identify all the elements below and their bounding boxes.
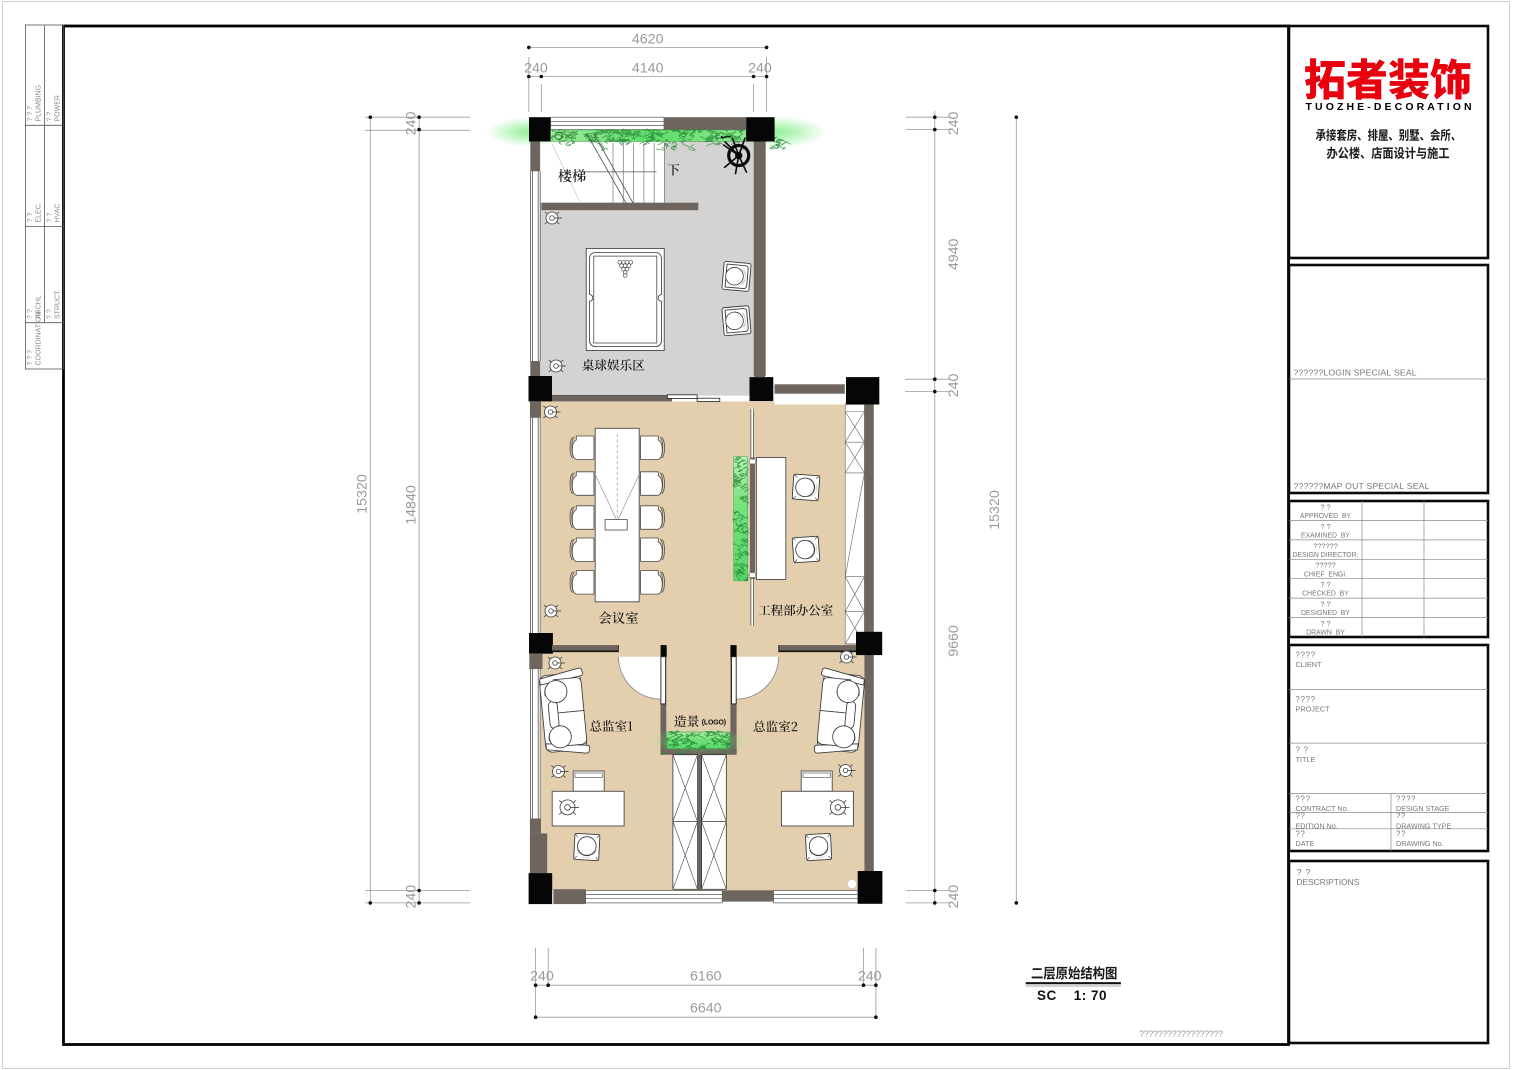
svg-text:??????????????????: ??????????????????: [1139, 1029, 1223, 1039]
svg-text:6160: 6160: [690, 969, 722, 985]
svg-text:EXAMINED BY: EXAMINED BY: [1301, 532, 1350, 539]
svg-text:9660: 9660: [946, 625, 962, 657]
svg-text:? ?: ? ?: [1320, 600, 1330, 609]
svg-text:? ?: ? ?: [1320, 502, 1330, 511]
svg-text:4620: 4620: [632, 32, 664, 48]
svg-text:? ?: ? ?: [1320, 619, 1330, 628]
svg-text:HVAC: HVAC: [55, 204, 62, 223]
svg-text:PROJECT: PROJECT: [1296, 705, 1331, 714]
svg-text:??????MAP OUT SPECIAL SEAL: ??????MAP OUT SPECIAL SEAL: [1294, 481, 1430, 491]
svg-text:POWER: POWER: [55, 95, 62, 121]
svg-text:DESIGN DIRECTOR:: DESIGN DIRECTOR:: [1292, 552, 1358, 559]
svg-text:??: ??: [1296, 812, 1306, 821]
svg-text:? ?: ? ?: [1320, 580, 1330, 589]
svg-text:??: ??: [1396, 830, 1406, 839]
svg-text:240: 240: [946, 885, 962, 909]
svg-text:??: ??: [1396, 812, 1406, 821]
svg-text:4140: 4140: [632, 61, 664, 77]
svg-text:??????LOGIN SPECIAL SEAL: ??????LOGIN SPECIAL SEAL: [1294, 368, 1417, 378]
svg-text:240: 240: [524, 61, 548, 77]
svg-text:? ?: ? ?: [1296, 746, 1309, 755]
svg-text:????: ????: [1296, 651, 1316, 660]
svg-text:ELEC.: ELEC.: [35, 202, 42, 222]
svg-text:DESIGNED BY: DESIGNED BY: [1301, 610, 1350, 617]
svg-text:? ?: ? ?: [27, 213, 34, 223]
svg-text:CHECKED BY: CHECKED BY: [1302, 591, 1349, 598]
svg-text:15320: 15320: [987, 490, 1003, 530]
svg-text:TUOZHE-DECORATION: TUOZHE-DECORATION: [1306, 101, 1475, 113]
svg-text:240: 240: [404, 112, 420, 136]
svg-text:???: ???: [1296, 795, 1311, 804]
svg-text:? ?: ? ?: [46, 309, 53, 319]
svg-text:? ?: ? ?: [1297, 868, 1312, 878]
svg-text:COORDINATION: COORDINATION: [35, 312, 42, 366]
svg-text:? ? ?: ? ? ?: [27, 106, 34, 122]
svg-text:DATE: DATE: [1296, 839, 1315, 848]
svg-text:APPROVED BY: APPROVED BY: [1300, 513, 1352, 520]
svg-text:? ?: ? ?: [1320, 522, 1330, 531]
svg-text:STRUCT.: STRUCT.: [55, 289, 62, 319]
svg-text:????: ????: [1396, 795, 1416, 804]
svg-text:240: 240: [748, 61, 772, 77]
svg-text:SC 1: 70: SC 1: 70: [1037, 988, 1107, 1003]
svg-text:240: 240: [946, 373, 962, 397]
svg-text:CHIEF ENGI.: CHIEF ENGI.: [1304, 571, 1347, 578]
svg-text:15320: 15320: [355, 474, 371, 514]
svg-text:? ?: ? ?: [46, 213, 53, 223]
svg-text:(LOGO): (LOGO): [702, 720, 726, 727]
svg-text:4940: 4940: [946, 239, 962, 271]
svg-text:240: 240: [946, 111, 962, 135]
svg-text:240: 240: [530, 969, 554, 985]
svg-text:PLUMBING: PLUMBING: [35, 85, 42, 122]
svg-text:? ?: ? ?: [46, 112, 53, 122]
svg-text:DESCRIPTIONS: DESCRIPTIONS: [1297, 877, 1360, 887]
svg-text:14840: 14840: [404, 485, 420, 525]
svg-text:6640: 6640: [690, 1001, 722, 1017]
svg-text:? ? ?: ? ? ?: [27, 350, 34, 366]
svg-text:DRAWN BY: DRAWN BY: [1306, 630, 1345, 637]
svg-text:?????: ?????: [1315, 561, 1336, 570]
svg-text:TITLE: TITLE: [1296, 755, 1316, 764]
svg-text:??????: ??????: [1313, 541, 1338, 550]
svg-text:??: ??: [1296, 830, 1306, 839]
svg-text:240: 240: [858, 969, 882, 985]
svg-text:? ?: ? ?: [27, 309, 34, 319]
svg-text:240: 240: [404, 885, 420, 909]
svg-text:DRAWING No.: DRAWING No.: [1396, 839, 1444, 848]
svg-text:????: ????: [1296, 695, 1316, 704]
svg-text:CLIENT: CLIENT: [1296, 660, 1322, 669]
